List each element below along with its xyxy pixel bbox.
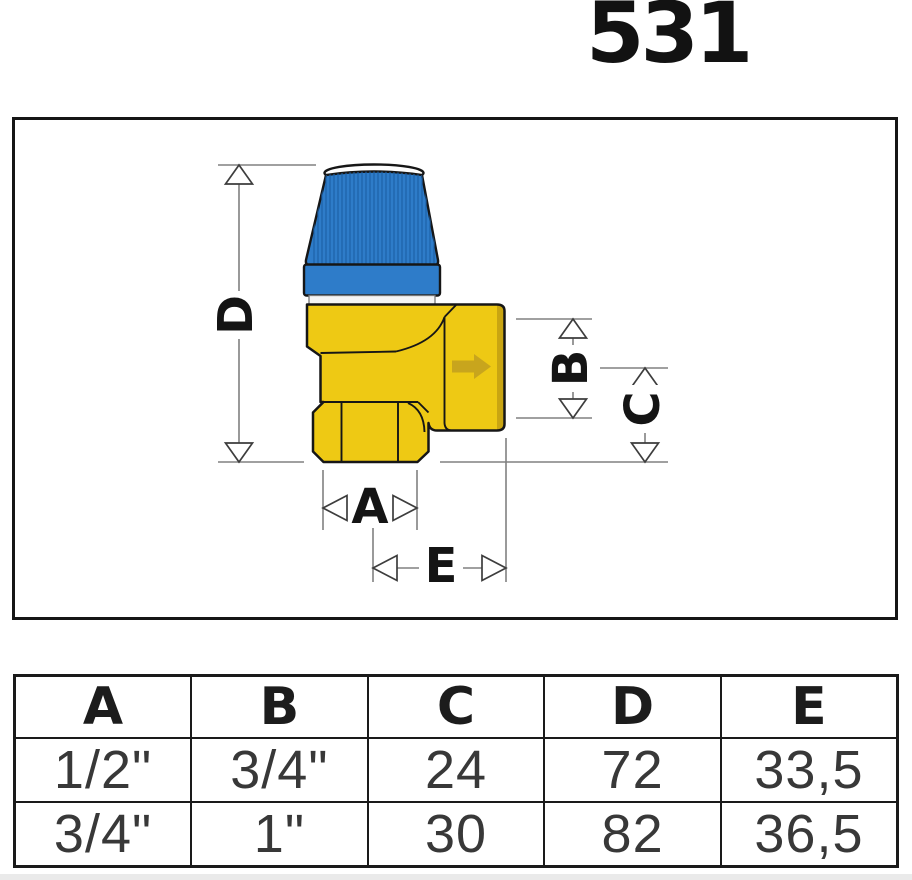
arrow-right-icon [393,496,417,521]
dimension-D: D [208,165,316,462]
table-cell: 72 [544,738,721,802]
table-cell: 3/4" [15,802,192,867]
dimension-B: B [516,319,599,418]
table-cell: 33,5 [721,738,898,802]
table-cell: 3/4" [191,738,368,802]
table-header-cell: D [544,676,721,739]
arrow-right-icon [482,556,506,581]
table-row: 3/4" 1" 30 82 36,5 [15,802,898,867]
valve-diagram-frame: D B C A [12,117,898,620]
safety-valve-drawing [304,165,505,463]
arrow-down-icon [226,443,253,462]
dim-label-D: D [208,295,264,335]
outlet-shade [497,305,504,430]
product-code-title: 531 [586,0,744,75]
table-cell: 36,5 [721,802,898,867]
table-cell: 24 [368,738,545,802]
table-cell: 1" [191,802,368,867]
table-header-cell: E [721,676,898,739]
arrow-up-icon [560,319,587,338]
cap-band [304,265,440,296]
table-cell: 82 [544,802,721,867]
dimension-A: A [323,470,417,535]
arrow-left-icon [373,556,397,581]
dimensions-table: A B C D E 1/2" 3/4" 24 72 33,5 3/4" 1" 3… [13,674,899,868]
dim-label-A: A [351,479,388,535]
dim-label-C: C [615,391,671,426]
arrow-up-icon [226,165,253,184]
arrow-down-icon [632,443,659,462]
table-header-cell: C [368,676,545,739]
valve-body [307,305,505,463]
valve-diagram: D B C A [15,120,895,617]
dim-label-B: B [543,350,599,387]
table-header-row: A B C D E [15,676,898,739]
table-row: 1/2" 3/4" 24 72 33,5 [15,738,898,802]
table-header-cell: B [191,676,368,739]
bottom-edge-shade [0,874,912,880]
arrow-up-icon [632,368,659,387]
arrow-down-icon [560,399,587,418]
table-cell: 1/2" [15,738,192,802]
dim-label-E: E [425,538,458,594]
arrow-left-icon [323,496,347,521]
table-header-cell: A [15,676,192,739]
washer-ring [309,296,435,305]
table-cell: 30 [368,802,545,867]
